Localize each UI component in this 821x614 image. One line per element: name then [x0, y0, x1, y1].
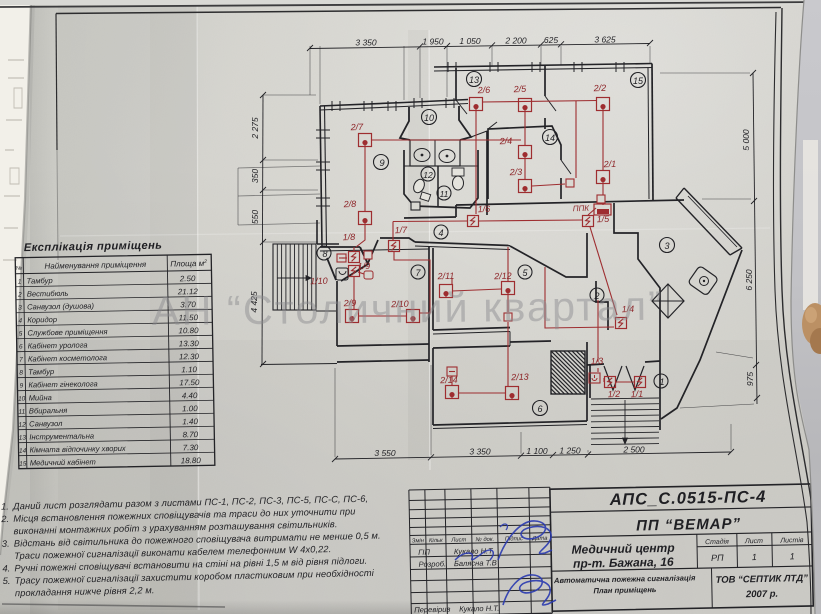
svg-text:8: 8 — [322, 249, 327, 259]
svg-text:625: 625 — [544, 35, 558, 45]
svg-text:Площа м2: Площа м2 — [170, 259, 207, 269]
svg-text:1/2: 1/2 — [607, 389, 620, 399]
svg-text:Розроб.: Розроб. — [419, 559, 447, 569]
svg-text:2/14: 2/14 — [439, 375, 458, 386]
svg-text:10: 10 — [18, 396, 26, 403]
svg-text:7.30: 7.30 — [183, 443, 199, 452]
svg-text:РП: РП — [711, 553, 724, 563]
svg-text:3.: 3. — [2, 539, 10, 549]
svg-text:1.40: 1.40 — [182, 417, 198, 426]
svg-text:2/2: 2/2 — [592, 83, 606, 93]
svg-text:2/12: 2/12 — [493, 271, 512, 282]
svg-text:5.: 5. — [3, 576, 11, 586]
svg-text:Вестибюль: Вестибюль — [27, 289, 69, 299]
svg-text:4.40: 4.40 — [182, 391, 198, 400]
svg-text:1/8: 1/8 — [342, 232, 355, 242]
svg-text:2/4: 2/4 — [498, 136, 512, 146]
svg-text:12.30: 12.30 — [179, 352, 200, 361]
svg-text:Кімната відпочинку хворих: Кімната відпочинку хворих — [29, 444, 126, 455]
svg-text:1.00: 1.00 — [182, 404, 198, 413]
svg-text:2 200: 2 200 — [504, 36, 527, 46]
svg-text:1.: 1. — [1, 502, 9, 512]
svg-text:2/3: 2/3 — [508, 167, 522, 177]
svg-text:пр-т. Бажана, 16: пр-т. Бажана, 16 — [573, 555, 674, 571]
svg-text:13: 13 — [19, 435, 27, 442]
svg-text:11: 11 — [440, 189, 449, 199]
svg-text:2/13: 2/13 — [510, 372, 529, 383]
svg-text:Тамбур: Тамбур — [27, 276, 53, 285]
svg-text:18.80: 18.80 — [181, 456, 202, 465]
svg-text:550: 550 — [250, 210, 260, 224]
svg-text:2.: 2. — [0, 514, 9, 524]
svg-text:Лист: Лист — [450, 537, 466, 543]
svg-text:План приміщень: План приміщень — [593, 585, 657, 595]
svg-text:Коридор: Коридор — [27, 315, 57, 325]
svg-text:1.10: 1.10 — [181, 365, 197, 374]
svg-text:Санвузол (душова): Санвузол (душова) — [27, 301, 95, 311]
svg-text:Кабінет уролога: Кабінет уролога — [28, 340, 88, 350]
svg-text:6: 6 — [537, 404, 542, 414]
svg-text:8.70: 8.70 — [182, 430, 198, 439]
svg-text:1: 1 — [659, 377, 664, 387]
svg-text:11: 11 — [18, 409, 25, 416]
svg-text:2/6: 2/6 — [476, 85, 490, 95]
svg-text:10: 10 — [424, 113, 434, 123]
svg-text:1/9: 1/9 — [357, 261, 370, 271]
svg-text:13.30: 13.30 — [179, 339, 200, 348]
svg-text:АПС_С.0515-ПС-4: АПС_С.0515-ПС-4 — [609, 488, 767, 509]
svg-text:1: 1 — [18, 279, 22, 286]
svg-text:Стадія: Стадія — [705, 538, 729, 546]
svg-text:ГІП: ГІП — [418, 548, 430, 557]
svg-text:350: 350 — [250, 169, 260, 183]
svg-text:Кабінет косметолога: Кабінет косметолога — [28, 353, 107, 363]
svg-text:2.50: 2.50 — [179, 274, 196, 283]
svg-text:4: 4 — [18, 318, 22, 325]
svg-text:1/3: 1/3 — [590, 356, 603, 366]
svg-text:12: 12 — [18, 422, 26, 429]
svg-text:3 350: 3 350 — [355, 38, 377, 48]
svg-text:1: 1 — [790, 551, 795, 561]
svg-text:Кукало Н.Т.: Кукало Н.Т. — [459, 604, 499, 614]
svg-text:Найменування приміщення: Найменування приміщення — [44, 260, 147, 271]
svg-text:1/10: 1/10 — [310, 276, 328, 287]
svg-text:ТОВ “СЕПТИК ЛТД”: ТОВ “СЕПТИК ЛТД” — [715, 573, 808, 586]
svg-text:2/11: 2/11 — [436, 271, 454, 282]
svg-text:1 100: 1 100 — [526, 446, 548, 456]
svg-text:Медичний кабінет: Медичний кабінет — [30, 457, 96, 467]
svg-text:15: 15 — [633, 76, 644, 86]
svg-text:5: 5 — [19, 331, 23, 338]
svg-text:Інструментальна: Інструментальна — [29, 431, 94, 441]
svg-text:2/5: 2/5 — [512, 84, 527, 95]
svg-text:14: 14 — [19, 448, 27, 455]
svg-text:АН “Столичний квартал”: АН “Столичний квартал” — [152, 283, 664, 334]
svg-text:14: 14 — [545, 133, 555, 143]
svg-text:Експлікація приміщень: Експлікація приміщень — [24, 240, 163, 254]
svg-text:1 250: 1 250 — [559, 446, 581, 456]
svg-text:4.: 4. — [2, 564, 10, 574]
svg-text:1/1: 1/1 — [630, 389, 643, 399]
svg-text:13: 13 — [469, 75, 479, 85]
svg-text:Лист: Лист — [744, 538, 763, 545]
svg-text:975: 975 — [745, 372, 755, 386]
svg-text:9: 9 — [20, 383, 24, 390]
svg-text:3: 3 — [18, 305, 22, 312]
svg-text:№ док.: № док. — [475, 537, 494, 543]
svg-text:6 250: 6 250 — [744, 269, 754, 291]
svg-text:7: 7 — [19, 357, 23, 364]
svg-text:Мийна: Мийна — [29, 393, 52, 402]
svg-text:1: 1 — [752, 552, 757, 562]
svg-text:Тамбур: Тамбур — [28, 367, 54, 376]
svg-text:12: 12 — [423, 170, 433, 180]
svg-text:8: 8 — [19, 370, 23, 377]
svg-text:2 500: 2 500 — [622, 445, 645, 455]
svg-text:Змін: Змін — [412, 538, 425, 544]
svg-text:2/8: 2/8 — [342, 199, 356, 209]
svg-text:3 625: 3 625 — [594, 35, 616, 45]
svg-text:3 550: 3 550 — [374, 448, 396, 458]
svg-text:3: 3 — [664, 241, 669, 251]
svg-text:2007 р.: 2007 р. — [745, 589, 778, 601]
svg-text:1/7: 1/7 — [394, 225, 408, 235]
svg-text:1 050: 1 050 — [459, 36, 481, 46]
svg-text:4: 4 — [438, 228, 443, 238]
svg-text:Службове приміщення: Службове приміщення — [27, 327, 107, 337]
svg-text:1/5: 1/5 — [596, 214, 610, 224]
svg-text:5 000: 5 000 — [741, 129, 751, 151]
svg-text:2 275: 2 275 — [250, 117, 260, 140]
svg-text:№: № — [16, 266, 22, 272]
svg-text:9: 9 — [379, 158, 385, 169]
svg-text:Кабінет гінеколога: Кабінет гінеколога — [28, 379, 97, 389]
svg-text:Вбиральня: Вбиральня — [29, 406, 68, 416]
svg-text:17.50: 17.50 — [179, 378, 200, 387]
svg-text:Листів: Листів — [779, 536, 804, 544]
svg-text:2: 2 — [17, 292, 22, 299]
svg-text:3 350: 3 350 — [469, 447, 491, 457]
svg-text:6: 6 — [19, 344, 23, 351]
svg-text:2/7: 2/7 — [349, 122, 364, 133]
svg-text:1 950: 1 950 — [422, 37, 444, 47]
svg-text:15: 15 — [19, 461, 27, 468]
svg-text:1/6: 1/6 — [477, 204, 490, 214]
svg-text:Кукало Н.Т.: Кукало Н.Т. — [454, 546, 494, 556]
svg-text:2/1: 2/1 — [602, 159, 616, 169]
svg-text:ПП “ВЕМАР”: ПП “ВЕМАР” — [636, 515, 741, 534]
svg-text:Санвузол: Санвузол — [29, 419, 63, 429]
svg-text:Кільк: Кільк — [429, 538, 443, 544]
svg-text:ППК: ППК — [573, 204, 591, 214]
